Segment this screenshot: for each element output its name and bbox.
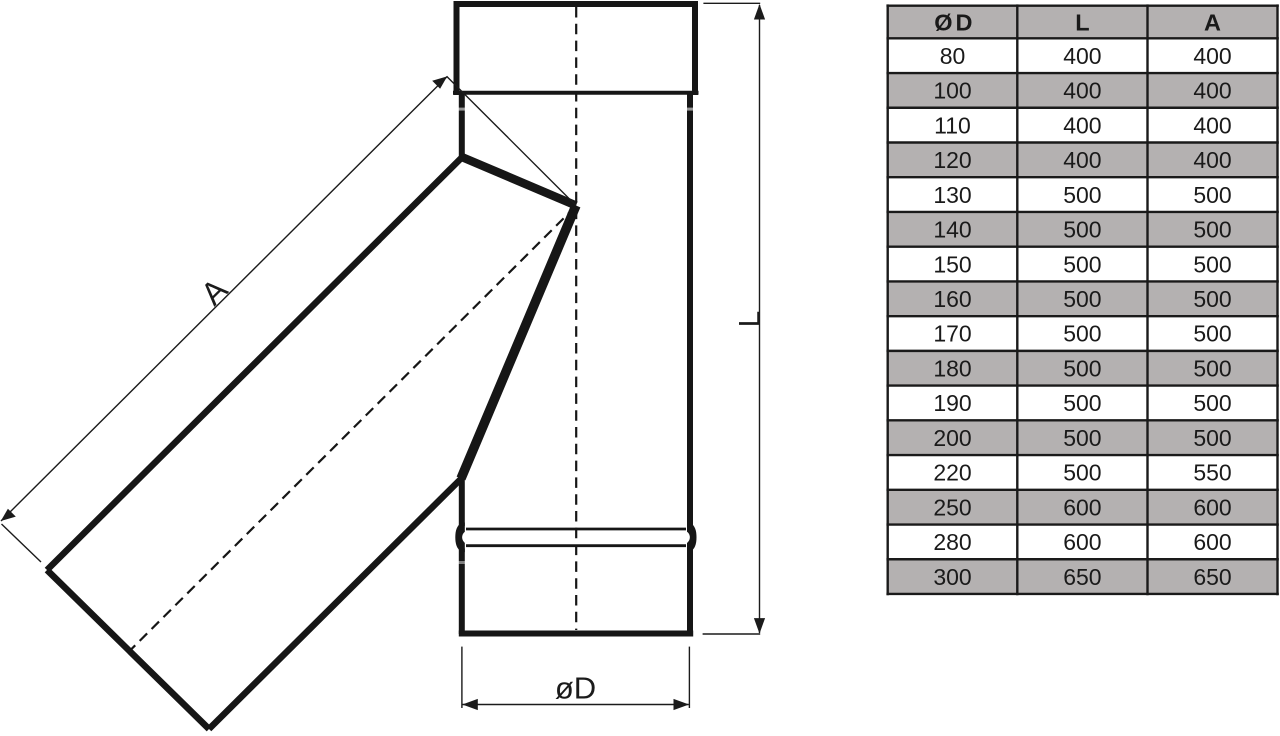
svg-text:400: 400 <box>1193 78 1231 104</box>
svg-text:400: 400 <box>1063 43 1101 69</box>
svg-text:190: 190 <box>933 390 971 416</box>
svg-text:500: 500 <box>1193 390 1231 416</box>
svg-text:400: 400 <box>1193 112 1231 138</box>
svg-text:170: 170 <box>933 321 971 347</box>
svg-text:A: A <box>1204 10 1221 36</box>
svg-text:øD: øD <box>555 671 596 706</box>
svg-text:Ø D: Ø D <box>934 10 971 36</box>
svg-text:500: 500 <box>1063 182 1101 208</box>
svg-text:550: 550 <box>1193 460 1231 486</box>
svg-text:140: 140 <box>933 217 971 243</box>
svg-text:110: 110 <box>934 112 971 138</box>
svg-text:180: 180 <box>933 355 971 381</box>
svg-text:280: 280 <box>933 529 971 555</box>
svg-text:500: 500 <box>1063 460 1101 486</box>
svg-text:600: 600 <box>1193 494 1231 520</box>
svg-text:80: 80 <box>940 43 966 69</box>
svg-text:500: 500 <box>1063 390 1101 416</box>
svg-text:500: 500 <box>1063 251 1101 277</box>
svg-text:600: 600 <box>1193 529 1231 555</box>
svg-text:600: 600 <box>1063 529 1101 555</box>
svg-text:500: 500 <box>1193 251 1231 277</box>
svg-text:650: 650 <box>1063 564 1101 590</box>
svg-text:500: 500 <box>1193 182 1231 208</box>
svg-text:220: 220 <box>933 460 971 486</box>
svg-text:500: 500 <box>1193 217 1231 243</box>
svg-text:300: 300 <box>933 564 971 590</box>
svg-text:160: 160 <box>933 286 971 312</box>
svg-text:500: 500 <box>1193 286 1231 312</box>
svg-text:400: 400 <box>1193 43 1231 69</box>
svg-text:L: L <box>733 311 766 328</box>
svg-text:650: 650 <box>1193 564 1231 590</box>
svg-text:150: 150 <box>933 251 971 277</box>
svg-text:600: 600 <box>1063 494 1101 520</box>
svg-text:400: 400 <box>1063 112 1101 138</box>
svg-text:500: 500 <box>1063 321 1101 347</box>
svg-text:500: 500 <box>1193 321 1231 347</box>
svg-text:500: 500 <box>1063 217 1101 243</box>
svg-text:500: 500 <box>1193 425 1231 451</box>
svg-text:120: 120 <box>933 147 971 173</box>
svg-text:500: 500 <box>1193 355 1231 381</box>
svg-text:200: 200 <box>933 425 971 451</box>
svg-text:100: 100 <box>933 78 971 104</box>
svg-text:L: L <box>1075 10 1089 36</box>
svg-text:500: 500 <box>1063 355 1101 381</box>
svg-text:130: 130 <box>933 182 971 208</box>
svg-text:250: 250 <box>933 494 971 520</box>
svg-text:500: 500 <box>1063 286 1101 312</box>
svg-text:400: 400 <box>1193 147 1231 173</box>
svg-text:500: 500 <box>1063 425 1101 451</box>
svg-text:400: 400 <box>1063 147 1101 173</box>
svg-text:400: 400 <box>1063 78 1101 104</box>
